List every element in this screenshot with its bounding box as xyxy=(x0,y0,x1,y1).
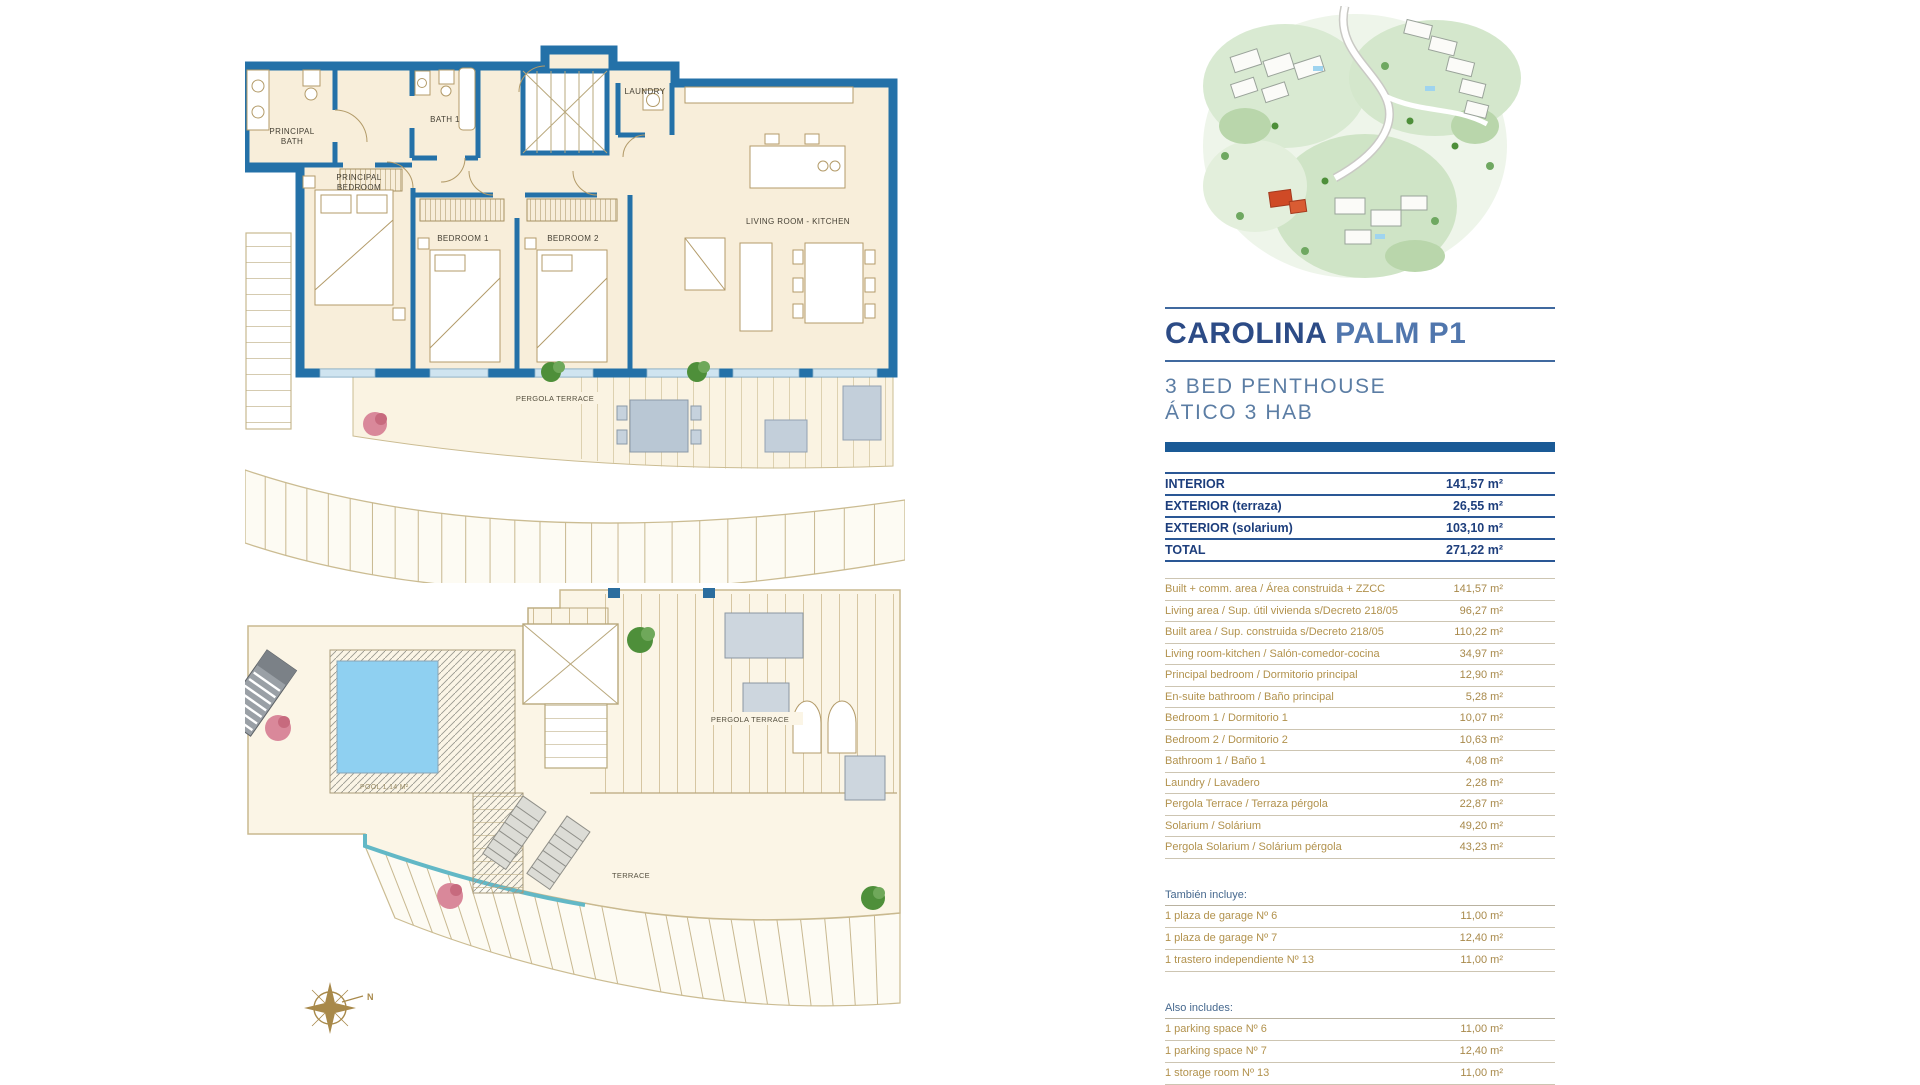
subtitle-line-1: 3 BED PENTHOUSE xyxy=(1165,374,1555,400)
side-stair-rungs xyxy=(246,233,291,429)
summary-label: INTERIOR xyxy=(1165,477,1225,491)
lower-floor-plan: POOL 1,14 M² xyxy=(245,588,905,1068)
summary-table: INTERIOR 141,57 m² EXTERIOR (terraza) 26… xyxy=(1165,472,1555,562)
area-value: 22,87 m² xyxy=(1460,798,1555,810)
area-row: Bedroom 1 / Dormitorio 1 10,07 m² xyxy=(1165,708,1555,730)
label-laundry: LAUNDRY xyxy=(625,87,666,96)
summary-value: 141,57 m² xyxy=(1446,477,1555,491)
include-row: 1 plaza de garage Nº 7 12,40 m² xyxy=(1165,928,1555,950)
area-row: Pergola Solarium / Solárium pérgola 43,2… xyxy=(1165,837,1555,859)
area-value: 12,90 m² xyxy=(1460,669,1555,681)
includes-en-rows: 1 parking space Nº 6 11,00 m² 1 parking … xyxy=(1165,1019,1555,1085)
include-label: 1 trastero independiente Nº 13 xyxy=(1165,954,1314,966)
include-row: 1 trastero independiente Nº 13 11,00 m² xyxy=(1165,950,1555,972)
page-title: CAROLINA PALM P1 xyxy=(1165,309,1555,360)
area-label: Bedroom 2 / Dormitorio 2 xyxy=(1165,734,1288,746)
pergola-post xyxy=(608,588,620,598)
accent-bar xyxy=(1165,442,1555,452)
label-bedroom-1: BEDROOM 1 xyxy=(437,234,489,243)
brochure-page: PRINCIPAL BATH PRINCIPAL BEDROOM BATH 1 … xyxy=(0,0,1920,1080)
include-label: 1 plaza de garage Nº 7 xyxy=(1165,932,1277,944)
includes-es-rows: 1 plaza de garage Nº 6 11,00 m² 1 plaza … xyxy=(1165,906,1555,972)
area-row: Bedroom 2 / Dormitorio 2 10,63 m² xyxy=(1165,730,1555,752)
include-label: 1 parking space Nº 7 xyxy=(1165,1045,1267,1057)
label-pool: POOL 1,14 M² xyxy=(360,784,409,791)
area-value: 96,27 m² xyxy=(1460,605,1555,617)
summary-value: 26,55 m² xyxy=(1453,499,1555,513)
includes-en-heading: Also includes: xyxy=(1165,998,1555,1019)
include-value: 11,00 m² xyxy=(1460,954,1555,966)
includes-es-heading: También incluye: xyxy=(1165,885,1555,906)
area-row: Built + comm. area / Área construida + Z… xyxy=(1165,579,1555,601)
includes-en-section: Also includes: 1 parking space Nº 6 11,0… xyxy=(1165,998,1555,1085)
include-value: 12,40 m² xyxy=(1460,1045,1555,1057)
summary-value: 271,22 m² xyxy=(1446,543,1555,557)
label-north: N xyxy=(367,992,374,1002)
map-green-4 xyxy=(1203,140,1307,232)
area-value: 10,63 m² xyxy=(1460,734,1555,746)
area-row: Laundry / Lavadero 2,28 m² xyxy=(1165,773,1555,795)
label-principal-bath-2: BATH xyxy=(281,137,303,146)
label-principal-bath: PRINCIPAL xyxy=(269,127,314,136)
summary-label: TOTAL xyxy=(1165,543,1206,557)
swimming-pool xyxy=(337,661,438,773)
areas-table: Built + comm. area / Área construida + Z… xyxy=(1165,578,1555,859)
area-value: 110,22 m² xyxy=(1454,626,1555,638)
area-label: Living area / Sup. útil vivienda s/Decre… xyxy=(1165,605,1398,617)
subtitle: 3 BED PENTHOUSE ÁTICO 3 HAB xyxy=(1165,362,1555,442)
label-pergola-terrace-upper: PERGOLA TERRACE xyxy=(516,394,594,403)
stairwell xyxy=(523,71,607,153)
summary-value: 103,10 m² xyxy=(1446,521,1555,535)
summary-row: INTERIOR 141,57 m² xyxy=(1165,474,1555,496)
upper-floor-plan: PRINCIPAL BATH PRINCIPAL BEDROOM BATH 1 … xyxy=(245,38,905,583)
area-value: 49,20 m² xyxy=(1460,820,1555,832)
map-pool-3 xyxy=(1375,234,1385,239)
site-plan-map xyxy=(1185,6,1525,301)
summary-row: EXTERIOR (terraza) 26,55 m² xyxy=(1165,496,1555,518)
pergola-post-2 xyxy=(703,588,715,598)
include-label: 1 storage room Nº 13 xyxy=(1165,1067,1269,1079)
label-bedroom-2: BEDROOM 2 xyxy=(547,234,599,243)
area-label: En-suite bathroom / Baño principal xyxy=(1165,691,1334,703)
title-secondary: PALM P1 xyxy=(1335,317,1466,350)
area-value: 2,28 m² xyxy=(1466,777,1555,789)
area-label: Solarium / Solárium xyxy=(1165,820,1261,832)
area-row: Solarium / Solárium 49,20 m² xyxy=(1165,816,1555,838)
include-row: 1 plaza de garage Nº 6 11,00 m² xyxy=(1165,906,1555,928)
label-principal-bedroom-2: BEDROOM xyxy=(337,183,381,192)
area-label: Laundry / Lavadero xyxy=(1165,777,1260,789)
area-value: 34,97 m² xyxy=(1460,648,1555,660)
map-pool-2 xyxy=(1425,86,1435,91)
subtitle-line-2: ÁTICO 3 HAB xyxy=(1165,400,1555,426)
area-label: Principal bedroom / Dormitorio principal xyxy=(1165,669,1358,681)
include-value: 11,00 m² xyxy=(1460,1067,1555,1079)
area-row: Living room-kitchen / Salón-comedor-coci… xyxy=(1165,644,1555,666)
summary-row: TOTAL 271,22 m² xyxy=(1165,540,1555,562)
info-panel: CAROLINA PALM P1 3 BED PENTHOUSE ÁTICO 3… xyxy=(1165,307,1555,1085)
area-label: Built + comm. area / Área construida + Z… xyxy=(1165,583,1385,595)
include-label: 1 parking space Nº 6 xyxy=(1165,1023,1267,1035)
map-shrub-1 xyxy=(1219,108,1271,144)
include-value: 11,00 m² xyxy=(1460,910,1555,922)
area-row: Living area / Sup. útil vivienda s/Decre… xyxy=(1165,601,1555,623)
area-value: 10,07 m² xyxy=(1460,712,1555,724)
summary-row: EXTERIOR (solarium) 103,10 m² xyxy=(1165,518,1555,540)
compass-icon: N xyxy=(304,982,374,1034)
map-pool-1 xyxy=(1313,66,1323,71)
area-value: 4,08 m² xyxy=(1466,755,1555,767)
include-row: 1 parking space Nº 6 11,00 m² xyxy=(1165,1019,1555,1041)
label-bath-1: BATH 1 xyxy=(430,115,460,124)
summary-label: EXTERIOR (solarium) xyxy=(1165,521,1293,535)
area-value: 141,57 m² xyxy=(1453,583,1555,595)
area-row: Principal bedroom / Dormitorio principal… xyxy=(1165,665,1555,687)
area-value: 43,23 m² xyxy=(1460,841,1555,853)
area-row: Bathroom 1 / Baño 1 4,08 m² xyxy=(1165,751,1555,773)
area-row: Pergola Terrace / Terraza pérgola 22,87 … xyxy=(1165,794,1555,816)
upper-balcony-band xyxy=(245,470,905,583)
includes-es-section: También incluye: 1 plaza de garage Nº 6 … xyxy=(1165,885,1555,972)
area-label: Pergola Terrace / Terraza pérgola xyxy=(1165,798,1328,810)
area-label: Living room-kitchen / Salón-comedor-coci… xyxy=(1165,648,1380,660)
area-label: Built area / Sup. construida s/Decreto 2… xyxy=(1165,626,1384,638)
summary-label: EXTERIOR (terraza) xyxy=(1165,499,1282,513)
map-shrub-3 xyxy=(1385,240,1445,272)
area-value: 5,28 m² xyxy=(1466,691,1555,703)
include-label: 1 plaza de garage Nº 6 xyxy=(1165,910,1277,922)
label-pergola-terrace-lower: PERGOLA TERRACE xyxy=(711,715,789,724)
include-value: 11,00 m² xyxy=(1460,1023,1555,1035)
label-living-room: LIVING ROOM - KITCHEN xyxy=(746,217,850,226)
label-principal-bedroom: PRINCIPAL xyxy=(336,173,381,182)
area-row: En-suite bathroom / Baño principal 5,28 … xyxy=(1165,687,1555,709)
area-label: Bathroom 1 / Baño 1 xyxy=(1165,755,1266,767)
area-row: Built area / Sup. construida s/Decreto 2… xyxy=(1165,622,1555,644)
area-label: Pergola Solarium / Solárium pérgola xyxy=(1165,841,1342,853)
label-terrace: TERRACE xyxy=(612,871,650,880)
area-label: Bedroom 1 / Dormitorio 1 xyxy=(1165,712,1288,724)
title-primary: CAROLINA xyxy=(1165,317,1326,350)
include-row: 1 parking space Nº 7 12,40 m² xyxy=(1165,1041,1555,1063)
include-value: 12,40 m² xyxy=(1460,932,1555,944)
include-row: 1 storage room Nº 13 11,00 m² xyxy=(1165,1063,1555,1085)
